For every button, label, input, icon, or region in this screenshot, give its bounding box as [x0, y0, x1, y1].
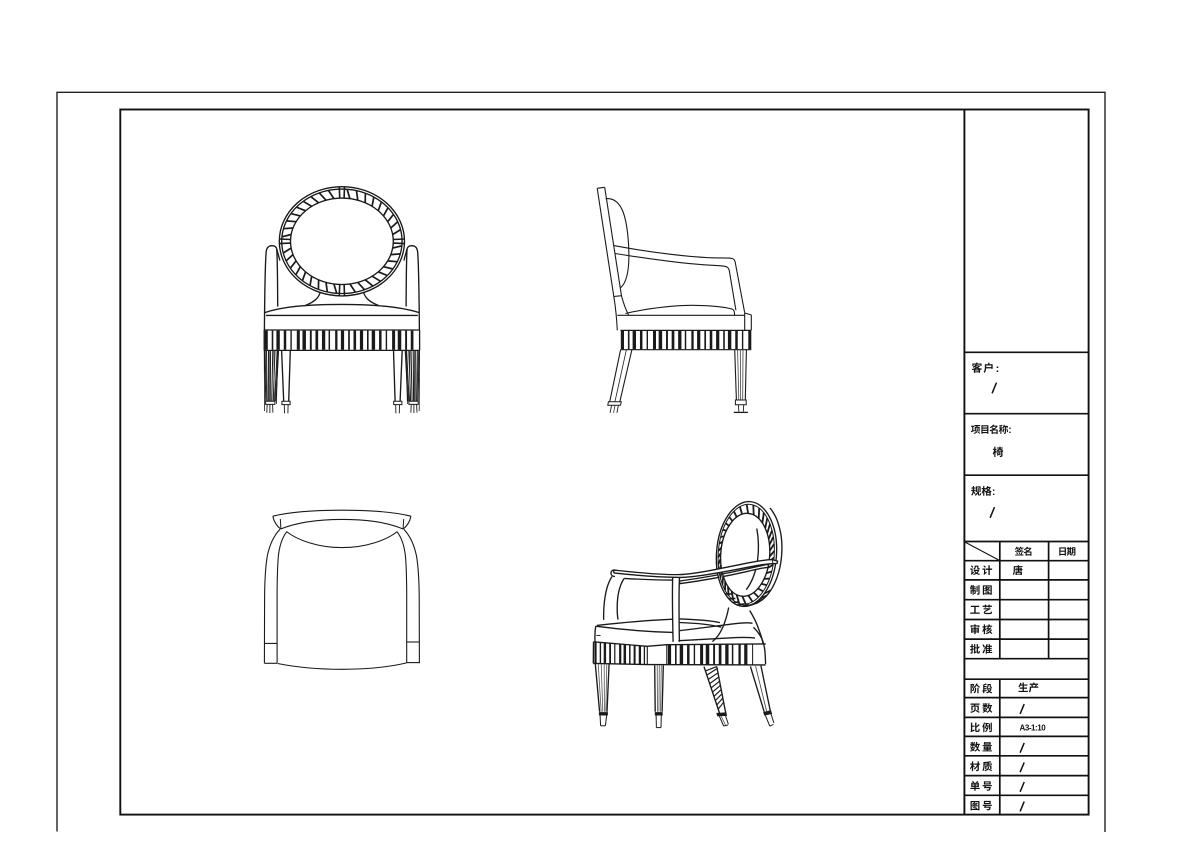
svg-text:A3-1:10: A3-1:10	[1020, 724, 1047, 733]
svg-text::: :	[996, 363, 1000, 375]
svg-text::: :	[992, 487, 995, 498]
svg-text::: :	[1008, 425, 1011, 436]
